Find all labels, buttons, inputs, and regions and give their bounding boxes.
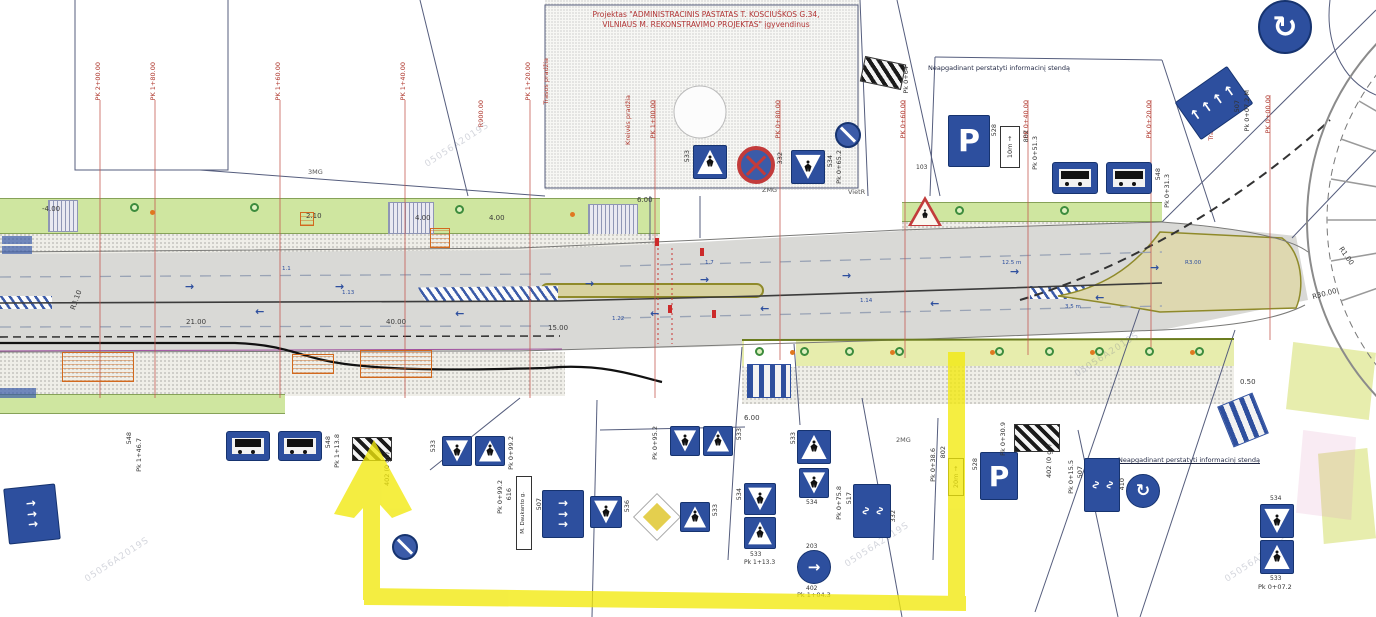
street-plan-drawing: PK 2+00.00 PK 1+80.00 PK 1+60.00 PK 1+40…: [0, 0, 1376, 617]
highlight-stem: [363, 486, 380, 600]
highlight-right-bar: [948, 352, 965, 604]
route-highlight: [0, 0, 1376, 617]
highlight-bottom-bar: [364, 588, 966, 611]
